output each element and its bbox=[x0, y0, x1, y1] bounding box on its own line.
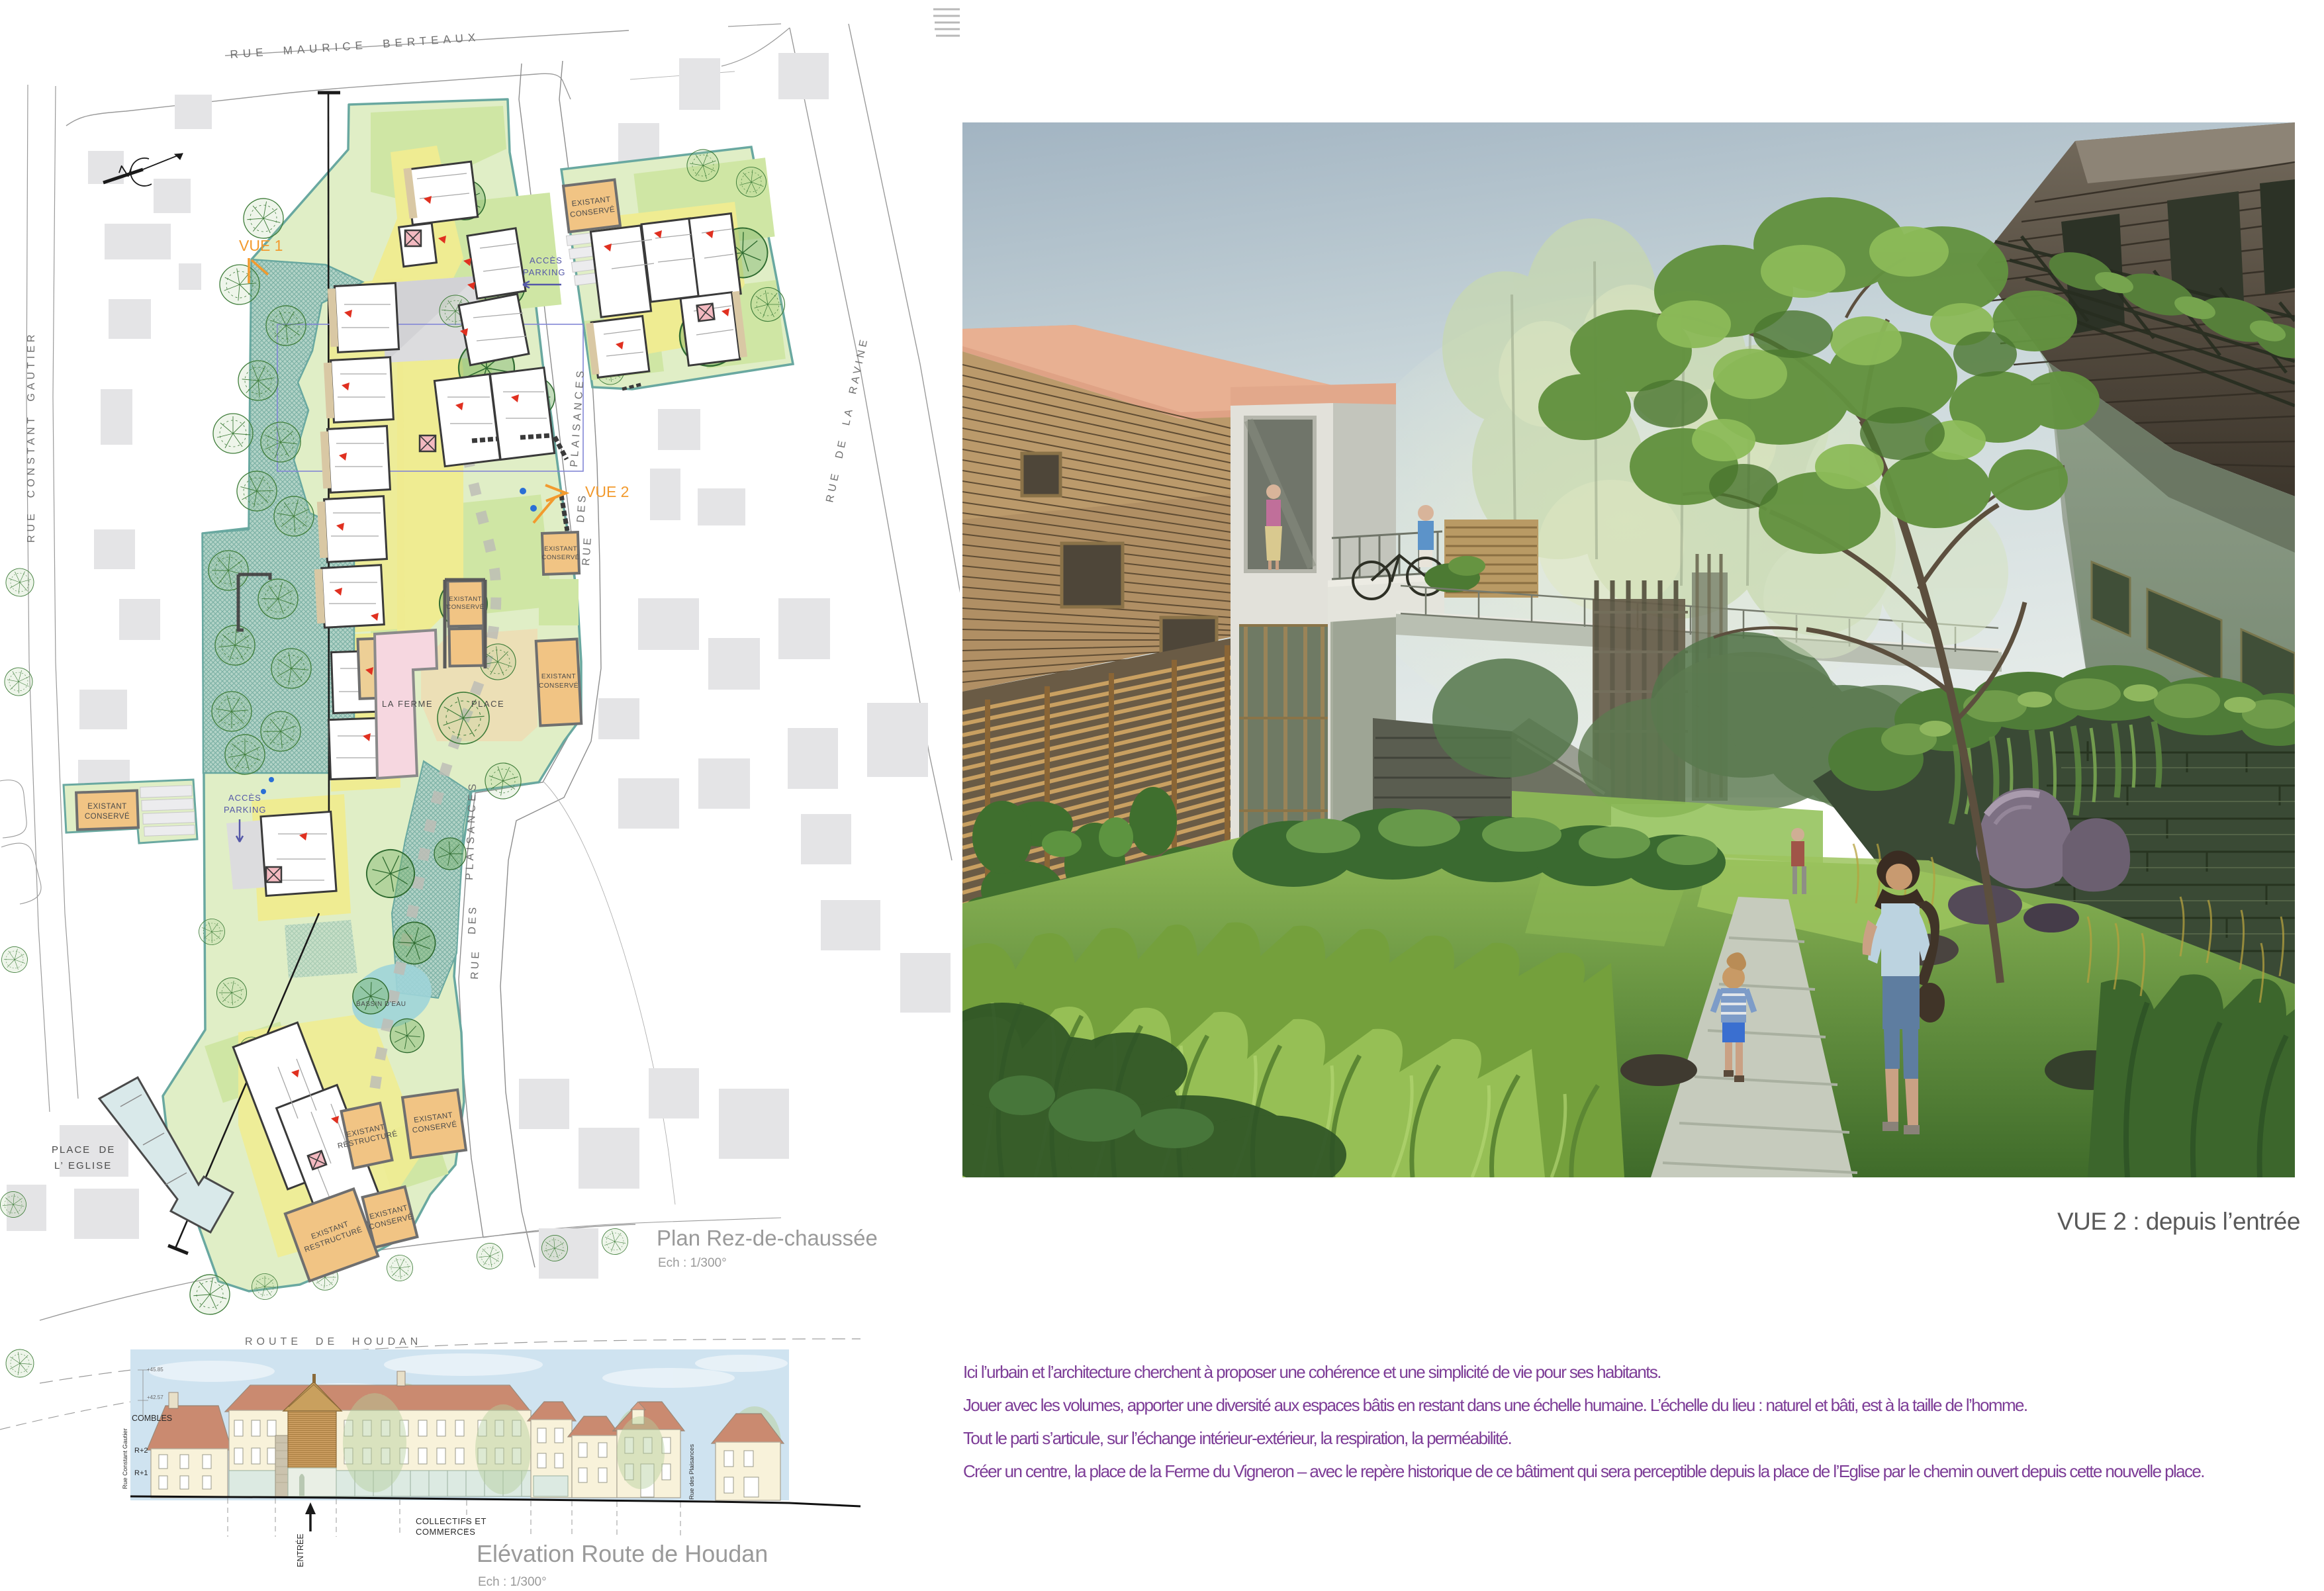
svg-text:LA FERME: LA FERME bbox=[382, 699, 433, 709]
svg-text:PARKING: PARKING bbox=[523, 267, 566, 277]
svg-text:PLACE DE: PLACE DE bbox=[52, 1144, 115, 1156]
svg-text:L’ EGLISE: L’ EGLISE bbox=[54, 1160, 112, 1171]
svg-text:COMBLES: COMBLES bbox=[132, 1414, 172, 1423]
svg-text:RUE DE LA RAVINE: RUE DE LA RAVINE bbox=[824, 336, 870, 504]
svg-text:ENTRÉE: ENTRÉE bbox=[295, 1533, 305, 1567]
svg-text:Rue Constant Gautier: Rue Constant Gautier bbox=[122, 1428, 129, 1489]
svg-text:ACCÈS: ACCÈS bbox=[530, 255, 563, 265]
svg-text:EXISTANT: EXISTANT bbox=[87, 803, 126, 811]
svg-text:+45.85: +45.85 bbox=[147, 1367, 163, 1373]
svg-text:ACCÈS: ACCÈS bbox=[228, 793, 261, 803]
svg-text:+42.57: +42.57 bbox=[147, 1394, 163, 1400]
svg-text:CONSERVÉ: CONSERVÉ bbox=[446, 604, 484, 611]
svg-text:Rue des Plaisances: Rue des Plaisances bbox=[688, 1444, 696, 1500]
svg-text:CONSERVÉ: CONSERVÉ bbox=[541, 554, 579, 561]
svg-text:EXISTANT: EXISTANT bbox=[449, 596, 482, 603]
svg-text:Ech : 1/300°: Ech : 1/300° bbox=[478, 1575, 547, 1589]
svg-text:Ech : 1/300°: Ech : 1/300° bbox=[658, 1256, 727, 1270]
svg-text:PLACE: PLACE bbox=[471, 699, 504, 709]
svg-text:CONSERVÉ: CONSERVÉ bbox=[539, 681, 579, 690]
svg-text:Plan Rez-de-chaussée: Plan Rez-de-chaussée bbox=[657, 1226, 878, 1250]
svg-text:VUE 2: VUE 2 bbox=[585, 483, 629, 500]
svg-text:R+2: R+2 bbox=[134, 1447, 148, 1455]
svg-text:COMMERCES: COMMERCES bbox=[416, 1527, 475, 1537]
svg-text:R+1: R+1 bbox=[134, 1469, 148, 1477]
svg-text:PARKING: PARKING bbox=[224, 805, 267, 815]
svg-text:DES: DES bbox=[467, 905, 479, 934]
svg-text:ROUTE DE HOUDAN: ROUTE DE HOUDAN bbox=[245, 1336, 422, 1347]
svg-text:RUE: RUE bbox=[469, 949, 482, 979]
svg-text:RUE: RUE bbox=[581, 535, 594, 566]
svg-text:PLAISANCES: PLAISANCES bbox=[569, 367, 586, 467]
svg-text:RUE MAURICE BERTEAUX: RUE MAURICE BERTEAUX bbox=[230, 31, 481, 61]
svg-text:RUE CONSTANT GAUTIER: RUE CONSTANT GAUTIER bbox=[26, 332, 37, 543]
svg-text:EXISTANT: EXISTANT bbox=[541, 673, 576, 680]
svg-text:EXISTANT: EXISTANT bbox=[544, 545, 577, 553]
svg-text:VUE 1: VUE 1 bbox=[239, 237, 283, 254]
svg-text:COLLECTIFS ET: COLLECTIFS ET bbox=[416, 1516, 487, 1526]
svg-text:CONSERVÉ: CONSERVÉ bbox=[85, 812, 130, 821]
svg-text:Elévation Route de Houdan: Elévation Route de Houdan bbox=[477, 1540, 768, 1567]
svg-text:BASSIN D’EAU: BASSIN D’EAU bbox=[356, 1001, 406, 1008]
